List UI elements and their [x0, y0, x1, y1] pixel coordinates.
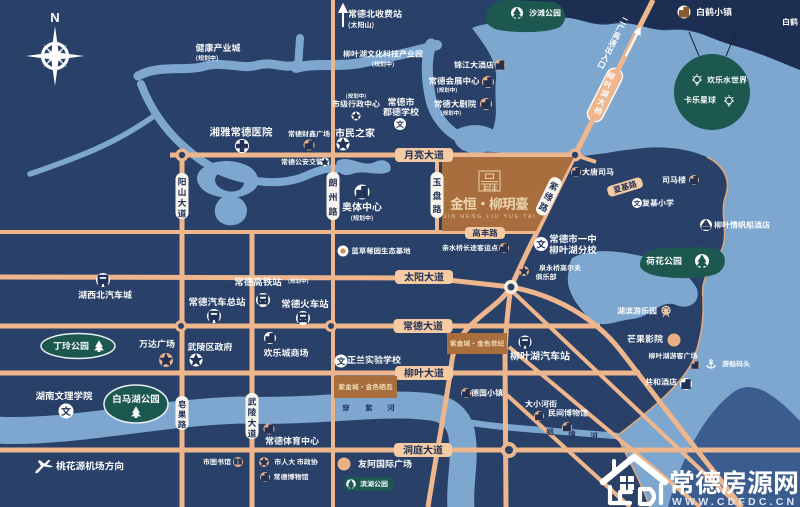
svg-text:N: N	[50, 10, 59, 25]
svg-text:JIN HENG LIU YUE TAI: JIN HENG LIU YUE TAI	[443, 214, 536, 220]
svg-text:WWW.CDFDC.CN: WWW.CDFDC.CN	[672, 496, 797, 507]
